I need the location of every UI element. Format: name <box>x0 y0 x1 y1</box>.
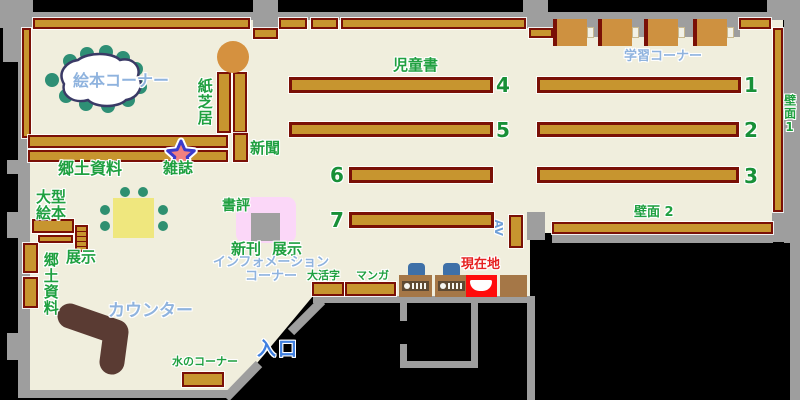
manga-label: マンガ <box>356 270 389 282</box>
display-pedestal <box>251 213 280 241</box>
marker-icon <box>470 280 492 291</box>
wall-bottom <box>18 390 232 398</box>
screen-icon <box>404 283 410 289</box>
bookshelf-kamishibai-1 <box>217 72 231 133</box>
wall-vestibule-bottom <box>400 361 478 368</box>
bookshelf-kamishibai-2 <box>233 72 247 133</box>
opac-terminal-2 <box>435 275 468 297</box>
wall-mid-horizontal <box>313 296 532 303</box>
local-materials-left-label: 郷土資料 <box>42 252 58 316</box>
wall-left-stub-1 <box>7 160 30 174</box>
bookshelf-kyodo-left-1 <box>23 243 38 273</box>
chair-icon <box>727 27 734 38</box>
large-print-label: 大活字 <box>307 270 340 282</box>
bookshelf-topwall-b <box>279 18 307 29</box>
large-picture-book-line2: 絵本 <box>36 204 66 222</box>
bookshelf-hekimen1 <box>773 28 783 212</box>
terminal-panel <box>438 281 465 291</box>
wall-vestibule-left-a <box>400 303 407 321</box>
children-books-label: 児童書 <box>393 58 438 74</box>
library-floor-map: 絵本コーナー 紙芝居 新聞 雑誌 郷土資料 大型 絵本 展示 郷土資料 児童書 … <box>0 0 800 400</box>
opac-terminal-1 <box>399 275 432 297</box>
shelf-number-5: 5 <box>496 120 510 141</box>
wall-pillar-2 <box>523 0 548 28</box>
bookshelf-7 <box>349 212 494 228</box>
shelf-number-7: 7 <box>330 210 344 231</box>
bookshelf-under-pillar2 <box>529 28 553 38</box>
shelf-number-6: 6 <box>330 165 344 186</box>
shelf-number-2: 2 <box>744 120 758 141</box>
current-location-label: 現在地 <box>461 258 500 272</box>
shelf-number-4: 4 <box>496 75 510 96</box>
reading-table <box>113 198 154 238</box>
study-desk-4 <box>693 19 727 46</box>
picture-book-corner-label: 絵本コーナー <box>73 73 169 90</box>
information-line2: コーナー <box>245 269 297 284</box>
bookshelf-topwall-d <box>341 18 526 29</box>
wall-left-stub-2 <box>7 212 30 238</box>
wall-corner-topleft <box>0 0 33 28</box>
water-corner-label: 水のコーナー <box>172 356 238 368</box>
bookshelf-daikatsuji <box>312 282 344 296</box>
wall-hekimen2-endblock <box>772 212 784 242</box>
study-desk-1 <box>553 19 587 46</box>
bookshelf-mizu-corner <box>182 372 224 387</box>
wall-right-lower <box>790 243 800 400</box>
wall-left-stub-3 <box>7 333 30 360</box>
bookshelf-manga <box>345 282 396 296</box>
terminal-panel <box>402 281 429 291</box>
bookshelf-topwall-c <box>311 18 338 29</box>
local-materials-label: 郷土資料 <box>58 161 122 178</box>
newspaper-label: 新聞 <box>250 141 280 157</box>
wall-surface2-label: 壁面 2 <box>634 206 674 220</box>
screen-icon <box>440 283 446 289</box>
bookshelf-ehon-leftwall <box>22 28 31 138</box>
bookshelf-topwall-a <box>33 18 250 29</box>
book-review-label: 書評 <box>222 199 250 214</box>
av-label: AV <box>492 220 504 236</box>
entrance-label: 入口 <box>257 340 299 360</box>
keyboard-icon <box>448 283 463 289</box>
bookshelf-kyodo-left-2 <box>23 277 38 308</box>
chair-icon <box>632 27 639 38</box>
magazine-label: 雑誌 <box>163 161 193 177</box>
wall-left-upper <box>3 28 18 62</box>
service-desk <box>500 275 527 297</box>
bookshelf-1 <box>537 77 741 93</box>
study-desk-2 <box>598 19 632 46</box>
bookshelf-2 <box>537 122 739 137</box>
study-desk-3 <box>644 19 678 46</box>
current-location-marker <box>466 275 497 297</box>
bookshelf-under-pillar1 <box>253 28 278 39</box>
shelf-number-1: 1 <box>744 75 758 96</box>
chair-icon <box>587 27 594 38</box>
study-corner-label: 学習コーナー <box>624 50 702 64</box>
keyboard-icon <box>412 283 427 289</box>
shelf-number-3: 3 <box>744 166 758 187</box>
chair-icon <box>678 27 685 38</box>
counter-label: カウンター <box>108 303 193 321</box>
bookshelf-kyodo-row1 <box>28 135 228 148</box>
display-label-left: 展示 <box>66 250 96 266</box>
bookshelf-5 <box>289 122 493 137</box>
bookshelf-shinbun <box>233 133 248 162</box>
wall-center-run <box>527 296 535 400</box>
bookshelf-6 <box>349 167 493 183</box>
bookshelf-tenji-horizontal <box>38 235 73 243</box>
bookshelf-3 <box>537 167 739 183</box>
wall-pillar-center <box>527 212 545 240</box>
bookshelf-hekimen2 <box>552 222 773 234</box>
bookshelf-4 <box>289 77 493 93</box>
bookshelf-topwall-e <box>739 18 771 29</box>
large-picture-book-label: 大型 絵本 <box>36 190 66 222</box>
wall-vestibule-right <box>471 303 478 368</box>
kamishibai-label: 紙芝居 <box>196 78 212 126</box>
bookshelf-av <box>509 215 523 248</box>
wall-surface1-label: 壁面1 <box>783 94 796 135</box>
wall-hekimen2 <box>552 234 773 243</box>
wall-pillar-1 <box>253 0 278 28</box>
